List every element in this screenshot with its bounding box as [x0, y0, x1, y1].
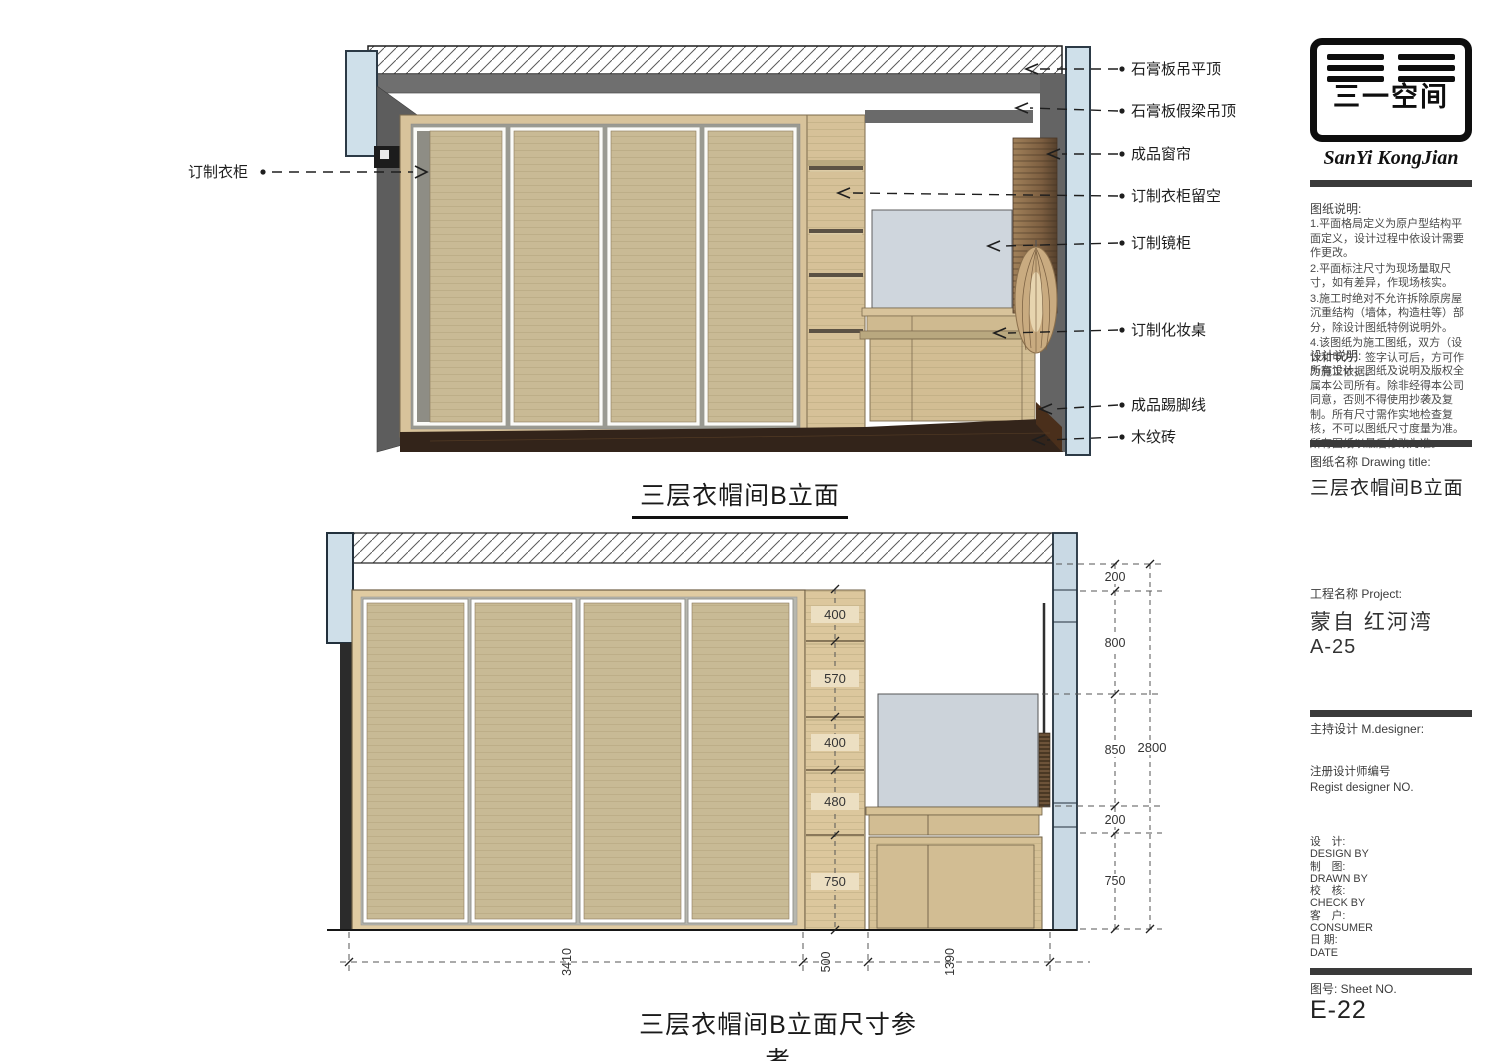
total-height-dim: 2800 [1138, 740, 1167, 755]
divider-bar [1310, 440, 1472, 447]
top-fake-beam [376, 74, 1062, 93]
svg-text:570: 570 [824, 671, 846, 686]
credits-list: 设 计:DESIGN BY 制 图:DRAWN BY 校 核:CHECK BY … [1310, 836, 1472, 959]
svg-text:400: 400 [824, 735, 846, 750]
bottom-curtain-bunched [1039, 733, 1050, 807]
logo-script-text: SanYi KongJian [1310, 147, 1472, 170]
logo-bars-icon [1317, 45, 1465, 84]
svg-text:850: 850 [1105, 743, 1126, 757]
bottom-vanity-drawers [869, 815, 1039, 835]
drawing-notes-heading: 图纸说明: [1310, 200, 1472, 217]
design-notes-heading: 设计说明: [1310, 347, 1472, 364]
credit-row: 制 图:DRAWN BY [1310, 861, 1472, 886]
bottom-dimension-drawing [327, 533, 1077, 930]
bottom-left-window [327, 533, 353, 643]
bottom-ceiling-hatch [352, 533, 1053, 563]
bottom-vanity-top [866, 807, 1042, 815]
callout-mirror-cabinet: 订制镜柜 [1131, 234, 1191, 252]
callout-wardrobe-clearance: 订制衣柜留空 [1131, 188, 1221, 205]
svg-text:1390: 1390 [943, 948, 957, 976]
callout-finished-curtain: 成品窗帘 [1131, 145, 1191, 163]
svg-text:400: 400 [824, 607, 846, 622]
top-view-title: 三层衣帽间B立面 [632, 476, 848, 519]
svg-text:480: 480 [824, 794, 846, 809]
credit-row: 校 核:CHECK BY [1310, 885, 1472, 910]
top-left-window [346, 51, 377, 156]
logo-stamp-text: 三一空间 [1317, 84, 1465, 111]
bottom-right-window [1053, 533, 1077, 930]
title-block-sidebar: 三一空间 SanYi KongJian 图纸说明: 1.平面格局定义为原户型结构… [1310, 30, 1472, 1055]
drawing-title-value: 三层衣帽间B立面 [1310, 473, 1472, 500]
elevation-drawings-svg: 订制衣柜 石膏板吊平顶 石膏板假梁吊顶 成品窗帘 订制衣柜留空 订制镜柜 [0, 0, 1500, 1061]
divider-bar [1310, 710, 1472, 717]
bottom-view-title: 三层衣帽间B立面尺寸参考 [628, 1005, 928, 1061]
callout-vanity-table: 订制化妆桌 [1131, 322, 1206, 339]
top-mirror [872, 210, 1012, 308]
top-vanity-drawers [867, 316, 1035, 331]
main-designer-label: 主持设计 M.designer: [1310, 720, 1472, 737]
top-callout-bullets [1119, 66, 1124, 439]
regist-designer-label: 注册设计师编号 Regist designer NO. [1310, 765, 1472, 796]
drawing-sheet: 订制衣柜 石膏板吊平顶 石膏板假梁吊顶 成品窗帘 订制衣柜留空 订制镜柜 [0, 0, 1500, 1061]
design-notes-body: 所有设计、图纸及说明及版权全属本公司所有。除非经得本公司同意，否则不得使用抄袭及… [1310, 364, 1472, 451]
svg-text:200: 200 [1105, 813, 1126, 827]
project-unit: A-25 [1310, 636, 1472, 659]
top-blind-box-detail [380, 150, 389, 159]
credit-row: 设 计:DESIGN BY [1310, 836, 1472, 861]
callout-gypsum-flat-ceiling: 石膏板吊平顶 [1131, 60, 1221, 78]
svg-text:200: 200 [1105, 570, 1126, 584]
callout-skirting: 成品踢脚线 [1131, 397, 1206, 414]
top-callout-labels: 石膏板吊平顶 石膏板假梁吊顶 成品窗帘 订制衣柜留空 订制镜柜 订制化妆桌 成品… [1131, 60, 1236, 446]
divider-bar [1310, 180, 1472, 187]
company-logo-stamp: 三一空间 [1310, 38, 1472, 142]
credit-row: 日 期:DATE [1310, 934, 1472, 959]
top-ceiling-hatch [368, 46, 1062, 74]
divider-bar [1310, 968, 1472, 975]
bottom-left-column [340, 643, 353, 930]
callout-gypsum-fake-beam: 石膏板假梁吊顶 [1131, 102, 1236, 120]
drawing-title-label: 图纸名称 Drawing title: [1310, 453, 1472, 470]
project-label: 工程名称 Project: [1310, 585, 1472, 602]
project-name: 蒙自 红河湾 [1310, 606, 1472, 636]
sheet-no-label: 图号: Sheet NO. [1310, 980, 1472, 997]
bottom-mirror [878, 694, 1038, 807]
sheet-no-value: E-22 [1310, 996, 1472, 1025]
svg-text:800: 800 [1105, 636, 1126, 650]
top-elevation-drawing [346, 46, 1090, 455]
top-right-window [1066, 47, 1090, 455]
svg-text:3410: 3410 [560, 948, 574, 976]
svg-text:750: 750 [824, 874, 846, 889]
credit-row: 客 户:CONSUMER [1310, 910, 1472, 935]
svg-text:750: 750 [1105, 874, 1126, 888]
top-soffit [865, 110, 1033, 123]
callout-wood-grain-tile: 木纹砖 [1131, 429, 1176, 446]
svg-text:500: 500 [819, 952, 833, 973]
callout-custom-wardrobe: 订制衣柜 [188, 164, 248, 181]
